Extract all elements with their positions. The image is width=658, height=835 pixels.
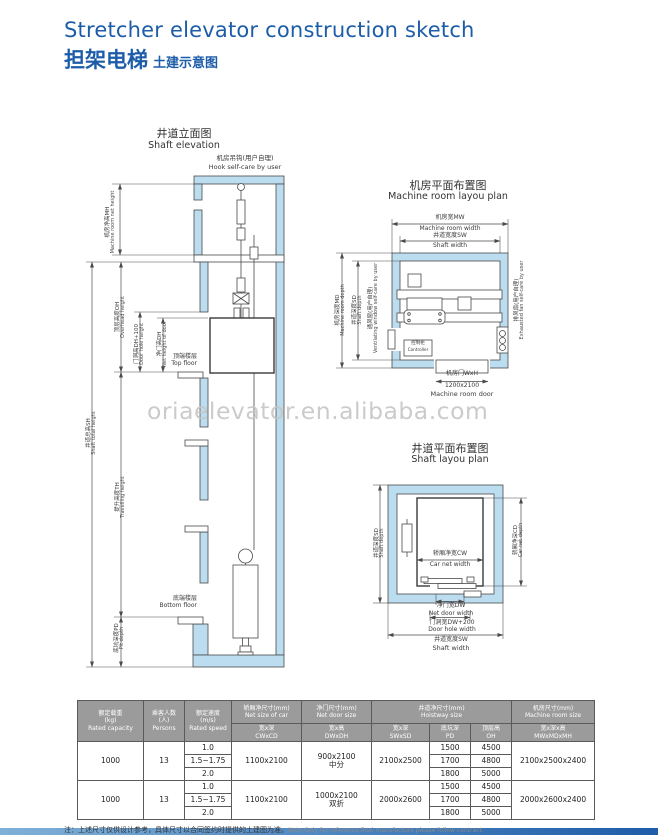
spec-table: 额定载重(kg)Rated capacity 乘客人数(人)Persons 额定… — [77, 700, 595, 820]
machine-room-top-wall — [194, 176, 284, 184]
cell-car-size: 1100x2100 — [232, 742, 302, 781]
hook-label-en: Hook self-care by user — [209, 164, 282, 171]
ventilating-window — [388, 330, 395, 349]
col-header-door-size: 净门尺寸(mm)Net door size — [302, 701, 372, 724]
dim-label-net-door-width-en: Net door width — [429, 611, 474, 618]
counterweight-pulley — [239, 549, 253, 563]
machine-room-door-size: 1200x2100 — [445, 383, 479, 390]
shaft-plan-title-en: Shaft layou plan — [411, 455, 488, 466]
machine-room-left-wall-upper — [194, 184, 202, 200]
car-door-panel — [424, 579, 462, 584]
cell-hoistway: 2000x2600 — [372, 781, 430, 820]
dim-label-shaft-width-zh: 井道宽度SW — [434, 637, 468, 644]
dim-label-car-net-width-en: Car net width — [430, 562, 471, 569]
hook-label-zh: 机房吊钩(用户自理) — [216, 155, 273, 162]
pit-left-wall — [193, 624, 208, 655]
dim-label-car-net-width-zh: 轿厢净宽CW — [433, 551, 467, 558]
dim-label-sw-top-zh: 井道宽度SW — [433, 233, 467, 240]
col-header-car-size: 轿厢净尺寸(mm)Net size of car — [232, 701, 302, 724]
cell-pit-depth: 1500 — [430, 742, 471, 755]
cell-overhead: 4800 — [471, 794, 512, 807]
landing-door-sill — [464, 591, 481, 597]
machine-room-door-label-zh: 机房门WxH — [446, 371, 478, 378]
watermark: oriaelevator.en.alibaba.com — [147, 397, 488, 425]
dim-label-car-net-depth: 轿厢净深CDCar net depth — [513, 523, 525, 558]
cell-overhead: 4500 — [471, 781, 512, 794]
elevation-title-zh: 井道立面图 — [157, 128, 212, 141]
car-door-panel — [438, 584, 476, 589]
cell-machine-room: 2100x2500x2400 — [512, 742, 595, 781]
cell-speed: 1.5~1.75 — [185, 755, 232, 768]
page-title-zh-sub: 土建示意图 — [153, 56, 218, 71]
machine-room-floor — [194, 255, 284, 262]
dim-label-pit-depth: 底坑深度PDPit depth — [114, 623, 126, 653]
cell-pit-depth: 1800 — [430, 768, 471, 781]
sub-header-dwxdh: 宽x高DWxDH — [302, 724, 372, 742]
shaft-walls — [388, 485, 503, 603]
cell-persons: 13 — [144, 742, 185, 781]
table-note: 注：上述尺寸仅供设计参考，具体尺寸以合同签约时提供的土建图为准。Note:Onl… — [64, 817, 484, 835]
cell-pit-depth: 1700 — [430, 794, 471, 807]
col-header-rated-capacity: 额定载重(kg)Rated capacity — [78, 701, 144, 742]
dim-label-machine-room-height: 机房净高MHMachine room net height — [105, 191, 117, 254]
dim-label-travelling-height: 提升高度THTravelling height — [115, 476, 127, 518]
exhaust-fan — [497, 327, 508, 353]
traction-machine — [407, 298, 442, 310]
cell-speed: 1.0 — [185, 742, 232, 755]
col-header-rated-speed: 额定速度(m/s)Rated speed — [185, 701, 232, 742]
top-floor-sill — [178, 372, 203, 378]
exhaust-fan-label: 排风扇(用户自理)Exhausted fan self-care by user — [514, 261, 526, 340]
cell-pit-depth: 1500 — [430, 781, 471, 794]
dim-label-machine-room-depth: 机房深度MDMachine room depth — [335, 284, 347, 336]
dim-label-shaft-total-height: 井道总高SHShaft total height — [86, 411, 98, 455]
sub-header-pd: 底坑深PD — [430, 724, 471, 742]
cell-car-size: 1100x2100 — [232, 781, 302, 820]
table-row: 1000 13 1.0 1100x2100 900x2100中分 2100x25… — [78, 742, 595, 755]
top-floor-label: 顶端楼层Top floor — [171, 354, 197, 368]
cell-hoistway: 2100x2500 — [372, 742, 430, 781]
dim-label-mw-zh: 机房宽MW — [435, 215, 464, 222]
dim-label-door-hole-width-en: Door hole width — [428, 627, 476, 634]
diverter-pulley — [233, 293, 249, 304]
dim-label-shaft-width-en: Shaft width — [433, 645, 470, 652]
cell-speed: 2.0 — [185, 768, 232, 781]
sub-header-oh: 顶层高OH — [471, 724, 512, 742]
hook — [238, 184, 245, 191]
dim-label-overhead-height: 顶层高度OHOverhead height — [115, 296, 127, 338]
counterweight — [233, 565, 258, 638]
dim-label-net-door-height: 净门高DHNet height of door — [157, 321, 169, 367]
car-plan — [417, 498, 483, 586]
machine-beam — [397, 313, 502, 322]
bottom-floor-label: 底端楼层Bottom floor — [159, 596, 197, 610]
machine-room-door-label-en: Machine room door — [431, 391, 494, 398]
pit-slab — [193, 655, 284, 667]
ventilating-window-label: 通风窗(用户自理)Ventilating window self-care by… — [368, 263, 380, 353]
controller-label: 控制柜Controller — [404, 341, 432, 352]
machine-room-left-wall-lower — [194, 210, 202, 255]
dim-label-door-hole-height: 门洞高DH+100Door hole height — [134, 323, 146, 365]
cell-overhead: 4500 — [471, 742, 512, 755]
dim-label-shaft-depth-mr: 井道深度SDShaft depth — [352, 295, 364, 325]
dim-label-shaft-depth: 井道深度SDShaft depth — [374, 528, 386, 558]
page-title-zh: 担架电梯土建示意图 — [64, 44, 218, 74]
machine-beam — [397, 290, 502, 299]
sub-header-swxsd: 宽x深SWxSD — [372, 724, 430, 742]
cell-capacity: 1000 — [78, 781, 144, 820]
cell-door-size: 1000x2100双折 — [302, 781, 372, 820]
col-header-persons: 乘客人数(人)Persons — [144, 701, 185, 742]
elevator-car — [210, 318, 274, 373]
cell-door-size: 900x2100中分 — [302, 742, 372, 781]
page: Stretcher elevator construction sketch 担… — [0, 0, 658, 835]
page-title-en: Stretcher elevator construction sketch — [64, 18, 475, 42]
bottom-floor-sill — [178, 617, 203, 624]
sub-header-cwxcd: 宽x深CWxCD — [232, 724, 302, 742]
cell-capacity: 1000 — [78, 742, 144, 781]
machine-room-plan-title-en: Machine room layou plan — [388, 192, 508, 203]
cell-overhead: 4800 — [471, 755, 512, 768]
cell-pit-depth: 1700 — [430, 755, 471, 768]
dim-label-sw-top-en: Shaft width — [433, 243, 467, 250]
table-row: 1000 13 1.0 1100x2100 1000x2100双折 2000x2… — [78, 781, 595, 794]
buffer — [243, 638, 249, 646]
cell-speed: 1.5~1.75 — [185, 794, 232, 807]
cell-persons: 13 — [144, 781, 185, 820]
counterweight-plan — [402, 524, 412, 552]
col-header-hoistway-size: 井道净尺寸(mm)Hoistway size — [372, 701, 512, 724]
sub-header-mwxmdxmh: 宽x深x高MWxMDxMH — [512, 724, 595, 742]
cell-speed: 1.0 — [185, 781, 232, 794]
cell-machine-room: 2000x2600x2400 — [512, 781, 595, 820]
cell-overhead: 5000 — [471, 768, 512, 781]
col-header-machine-room-size: 机房尺寸(mm)Machine room size — [512, 701, 595, 724]
elevation-title-en: Shaft elevation — [148, 141, 220, 152]
